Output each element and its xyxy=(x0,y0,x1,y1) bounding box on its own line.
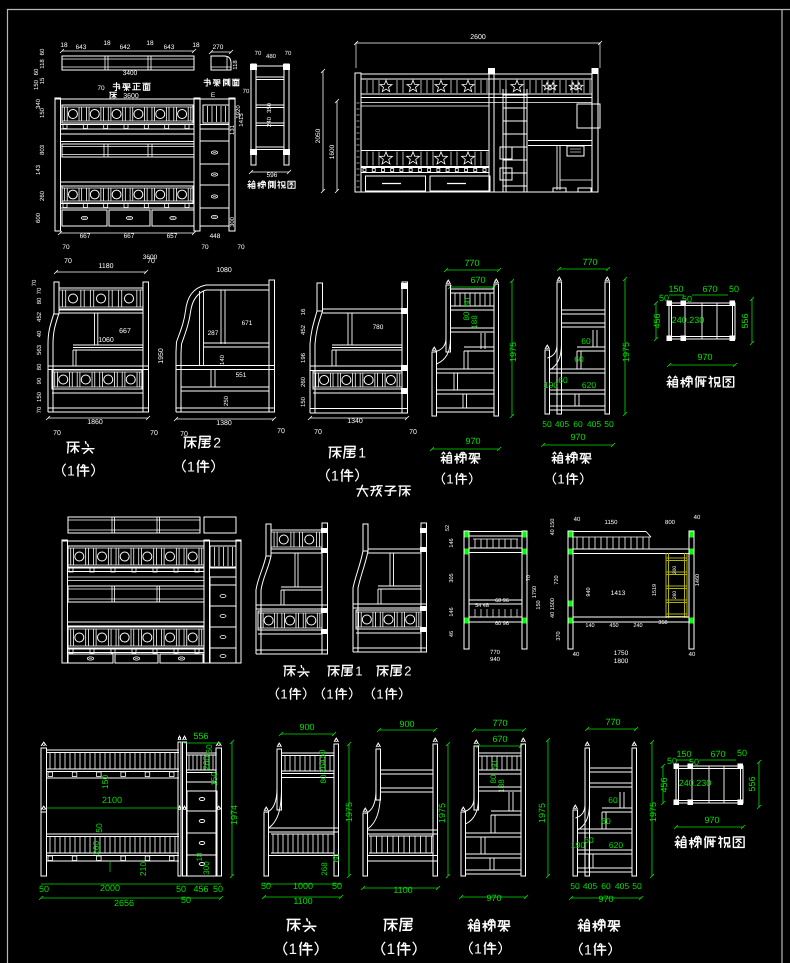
svg-text:90: 90 xyxy=(36,377,43,384)
svg-text:40: 40 xyxy=(694,514,701,521)
svg-text:70: 70 xyxy=(277,428,285,435)
svg-text:70: 70 xyxy=(150,430,158,437)
svg-text:1975: 1975 xyxy=(648,802,658,822)
svg-text:150: 150 xyxy=(300,396,307,407)
svg-text:60: 60 xyxy=(584,835,594,845)
svg-text:287: 287 xyxy=(208,330,219,337)
svg-text:1: 1 xyxy=(331,467,339,483)
svg-text:70: 70 xyxy=(243,88,250,95)
svg-text:1975: 1975 xyxy=(344,802,354,822)
svg-text:940: 940 xyxy=(490,656,501,663)
svg-text:970: 970 xyxy=(486,893,501,903)
svg-text:52: 52 xyxy=(445,525,451,531)
svg-text:40 1500: 40 1500 xyxy=(550,598,556,618)
svg-text:770: 770 xyxy=(582,257,597,267)
svg-text:452: 452 xyxy=(300,324,307,335)
svg-text:80: 80 xyxy=(36,363,43,370)
svg-text:40: 40 xyxy=(573,651,580,658)
svg-text:3400: 3400 xyxy=(123,70,138,77)
svg-text:667: 667 xyxy=(124,233,135,240)
svg-text:1: 1 xyxy=(326,686,333,701)
svg-text:670: 670 xyxy=(492,734,507,744)
svg-text:50: 50 xyxy=(490,760,499,769)
svg-text:803: 803 xyxy=(39,144,46,155)
svg-text:300: 300 xyxy=(229,216,236,227)
svg-text:900: 900 xyxy=(299,722,314,732)
svg-text:900: 900 xyxy=(399,719,414,729)
svg-text:720: 720 xyxy=(554,575,560,584)
svg-text:60: 60 xyxy=(332,853,341,862)
svg-text:1: 1 xyxy=(280,686,287,701)
svg-text:80: 80 xyxy=(319,774,328,783)
svg-text:270: 270 xyxy=(213,44,224,51)
svg-text:18: 18 xyxy=(146,40,154,47)
svg-text:1100: 1100 xyxy=(293,896,312,906)
svg-text:250: 250 xyxy=(223,395,230,406)
svg-text:405: 405 xyxy=(583,881,597,891)
svg-text:260: 260 xyxy=(39,190,46,201)
svg-text:1380: 1380 xyxy=(216,420,232,427)
svg-text:18: 18 xyxy=(195,852,204,861)
svg-text:188: 188 xyxy=(470,315,479,329)
svg-text:50: 50 xyxy=(204,744,214,754)
svg-text:50: 50 xyxy=(729,284,739,294)
svg-text:50: 50 xyxy=(39,884,49,894)
svg-text:50: 50 xyxy=(737,748,747,758)
svg-text:2600: 2600 xyxy=(470,34,486,41)
svg-text:1: 1 xyxy=(474,940,482,956)
svg-text:448: 448 xyxy=(210,233,221,240)
svg-text:2: 2 xyxy=(404,663,411,678)
svg-text:70: 70 xyxy=(64,258,72,265)
svg-text:1519: 1519 xyxy=(652,584,658,596)
svg-text:620: 620 xyxy=(609,840,623,850)
svg-text:1: 1 xyxy=(358,444,366,460)
svg-text:50: 50 xyxy=(604,419,614,429)
svg-text:1000: 1000 xyxy=(293,881,313,891)
svg-text:452: 452 xyxy=(36,311,43,322)
svg-text:405: 405 xyxy=(615,881,629,891)
svg-text:1920: 1920 xyxy=(235,105,242,119)
svg-text:70: 70 xyxy=(409,429,417,436)
svg-text:150: 150 xyxy=(33,79,40,90)
svg-text:70: 70 xyxy=(53,430,61,437)
svg-text:1340: 1340 xyxy=(347,418,363,425)
svg-text:210: 210 xyxy=(138,862,148,876)
svg-text:60 96: 60 96 xyxy=(495,598,509,604)
svg-text:563: 563 xyxy=(36,344,43,355)
svg-text:1: 1 xyxy=(355,663,362,678)
svg-text:60: 60 xyxy=(573,419,583,429)
svg-text:140: 140 xyxy=(219,354,226,365)
svg-text:70: 70 xyxy=(526,575,532,581)
svg-text:1975: 1975 xyxy=(537,803,547,823)
svg-text:18: 18 xyxy=(192,42,200,49)
svg-text:1: 1 xyxy=(557,471,564,486)
svg-text:2000: 2000 xyxy=(100,883,120,893)
svg-text:50: 50 xyxy=(332,881,342,891)
svg-text:1413: 1413 xyxy=(611,590,626,597)
svg-text:1: 1 xyxy=(376,686,383,701)
svg-text:70: 70 xyxy=(97,85,105,92)
svg-text:268: 268 xyxy=(320,862,329,876)
svg-text:70: 70 xyxy=(255,50,262,57)
svg-text:670: 670 xyxy=(702,284,717,294)
svg-text:40 150: 40 150 xyxy=(550,519,556,536)
svg-text:60: 60 xyxy=(601,816,611,826)
svg-text:770: 770 xyxy=(464,258,479,268)
svg-text:970: 970 xyxy=(570,432,585,442)
svg-text:556: 556 xyxy=(740,313,750,328)
svg-text:16: 16 xyxy=(300,308,307,315)
svg-text:240: 240 xyxy=(266,116,273,127)
svg-text:50: 50 xyxy=(94,823,104,833)
svg-text:667: 667 xyxy=(80,233,91,240)
svg-text:620: 620 xyxy=(582,380,596,390)
svg-text:140: 140 xyxy=(585,623,594,629)
svg-text:260: 260 xyxy=(201,756,211,770)
svg-text:54 48: 54 48 xyxy=(475,603,489,609)
svg-text:450: 450 xyxy=(609,623,618,629)
svg-text:240.230: 240.230 xyxy=(672,315,705,325)
svg-text:46: 46 xyxy=(449,631,455,637)
svg-text:1750: 1750 xyxy=(614,650,629,657)
svg-text:2050: 2050 xyxy=(315,128,322,143)
svg-text:40: 40 xyxy=(36,330,43,337)
svg-text:670: 670 xyxy=(470,275,485,285)
svg-text:1860: 1860 xyxy=(87,419,103,426)
svg-text:60: 60 xyxy=(558,375,568,385)
svg-text:70: 70 xyxy=(62,244,70,251)
svg-text:405: 405 xyxy=(587,419,601,429)
svg-text:1: 1 xyxy=(387,941,395,958)
svg-text:143: 143 xyxy=(35,164,42,175)
svg-text:70: 70 xyxy=(31,279,38,286)
svg-text:1975: 1975 xyxy=(437,803,447,823)
svg-text:240.230: 240.230 xyxy=(679,778,712,788)
svg-text:800: 800 xyxy=(665,519,676,526)
svg-text:643: 643 xyxy=(164,44,175,51)
svg-text:190: 190 xyxy=(571,840,585,850)
svg-text:970: 970 xyxy=(598,894,613,904)
svg-text:1: 1 xyxy=(187,458,195,474)
svg-text:50: 50 xyxy=(318,749,327,758)
svg-text:260: 260 xyxy=(672,591,678,600)
svg-text:556: 556 xyxy=(193,731,208,741)
svg-text:15: 15 xyxy=(39,77,46,84)
svg-text:150: 150 xyxy=(536,600,542,609)
svg-text:1: 1 xyxy=(289,941,297,958)
svg-text:50: 50 xyxy=(632,881,642,891)
svg-text:305: 305 xyxy=(449,573,455,582)
svg-text:350: 350 xyxy=(266,102,273,113)
svg-text:480: 480 xyxy=(266,53,277,60)
svg-text:70: 70 xyxy=(314,429,322,436)
svg-text:643: 643 xyxy=(76,44,87,51)
svg-text:770: 770 xyxy=(605,717,620,727)
svg-text:456: 456 xyxy=(659,777,669,792)
svg-text:50: 50 xyxy=(570,881,580,891)
svg-text:2: 2 xyxy=(213,434,221,450)
svg-text:596: 596 xyxy=(267,172,278,179)
svg-text:2100: 2100 xyxy=(102,795,122,805)
svg-text:196: 196 xyxy=(300,352,307,363)
svg-text:50: 50 xyxy=(181,895,191,905)
svg-text:1150: 1150 xyxy=(605,519,619,526)
svg-text:1750: 1750 xyxy=(532,586,538,598)
svg-text:551: 551 xyxy=(236,372,247,379)
svg-text:1100: 1100 xyxy=(393,885,412,895)
svg-text:1975: 1975 xyxy=(508,342,518,362)
svg-text:70: 70 xyxy=(36,406,43,413)
svg-text:60: 60 xyxy=(601,881,611,891)
svg-text:131: 131 xyxy=(229,124,236,135)
svg-text:1600: 1600 xyxy=(329,144,336,159)
svg-text:456: 456 xyxy=(652,313,662,328)
svg-text:150: 150 xyxy=(668,284,683,294)
svg-text:405: 405 xyxy=(555,419,569,429)
svg-text:2656: 2656 xyxy=(114,898,134,908)
svg-text:1800: 1800 xyxy=(614,658,629,665)
svg-text:370: 370 xyxy=(556,631,562,640)
svg-text:1460: 1460 xyxy=(695,574,701,586)
svg-text:70: 70 xyxy=(285,50,292,57)
svg-text:80: 80 xyxy=(36,297,43,304)
svg-text:260: 260 xyxy=(91,841,101,855)
svg-text:300: 300 xyxy=(202,861,211,875)
svg-text:970: 970 xyxy=(697,352,712,362)
svg-text:60: 60 xyxy=(39,48,46,55)
svg-text:970: 970 xyxy=(465,436,480,446)
svg-text:264: 264 xyxy=(318,759,327,773)
svg-text:1: 1 xyxy=(67,462,75,478)
svg-text:1: 1 xyxy=(584,941,592,957)
svg-text:60 96: 60 96 xyxy=(495,621,509,627)
svg-text:642: 642 xyxy=(120,44,131,51)
svg-text:118: 118 xyxy=(232,60,239,70)
svg-text:260: 260 xyxy=(300,376,307,387)
svg-text:667: 667 xyxy=(119,328,131,335)
svg-text:60: 60 xyxy=(608,795,618,805)
svg-text:70: 70 xyxy=(36,287,43,294)
svg-text:146: 146 xyxy=(449,538,455,547)
svg-text:70: 70 xyxy=(237,244,245,251)
svg-text:770: 770 xyxy=(490,649,501,656)
svg-text:70: 70 xyxy=(201,244,209,251)
svg-text:150: 150 xyxy=(36,391,43,402)
svg-text:E: E xyxy=(211,92,216,99)
svg-text:40: 40 xyxy=(689,651,696,658)
svg-text:118: 118 xyxy=(39,59,46,69)
svg-text:1975: 1975 xyxy=(621,342,631,362)
svg-text:1: 1 xyxy=(446,471,453,486)
svg-text:60: 60 xyxy=(33,68,40,75)
svg-text:60: 60 xyxy=(574,354,584,364)
svg-text:50: 50 xyxy=(176,884,186,894)
svg-text:556: 556 xyxy=(747,776,757,791)
svg-text:70: 70 xyxy=(147,258,155,265)
svg-text:1974: 1974 xyxy=(229,805,239,825)
svg-text:780: 780 xyxy=(373,324,384,331)
svg-text:190: 190 xyxy=(544,380,558,390)
svg-text:970: 970 xyxy=(704,815,719,825)
svg-text:18: 18 xyxy=(103,40,111,47)
svg-text:770: 770 xyxy=(492,718,507,728)
svg-text:1060: 1060 xyxy=(98,337,114,344)
svg-text:1180: 1180 xyxy=(98,263,113,270)
svg-text:240: 240 xyxy=(633,623,642,629)
svg-text:200: 200 xyxy=(672,566,678,575)
svg-text:1080: 1080 xyxy=(216,267,232,274)
svg-text:50: 50 xyxy=(463,297,472,306)
svg-text:1950: 1950 xyxy=(158,348,165,364)
svg-text:18: 18 xyxy=(60,42,68,49)
svg-text:150: 150 xyxy=(100,775,110,789)
svg-text:350: 350 xyxy=(658,620,667,626)
svg-text:50: 50 xyxy=(542,419,552,429)
svg-text:40: 40 xyxy=(574,516,581,523)
svg-text:150: 150 xyxy=(209,772,219,786)
svg-text:600: 600 xyxy=(35,212,42,223)
svg-text:671: 671 xyxy=(242,320,253,327)
svg-text:146: 146 xyxy=(449,607,455,616)
svg-text:50: 50 xyxy=(213,884,223,894)
svg-text:340: 340 xyxy=(35,98,42,109)
svg-text:50: 50 xyxy=(261,881,271,891)
svg-text:670: 670 xyxy=(710,749,725,759)
svg-text:657: 657 xyxy=(167,233,178,240)
svg-text:940: 940 xyxy=(586,587,592,596)
svg-text:456: 456 xyxy=(193,884,208,894)
svg-text:60: 60 xyxy=(581,336,591,346)
